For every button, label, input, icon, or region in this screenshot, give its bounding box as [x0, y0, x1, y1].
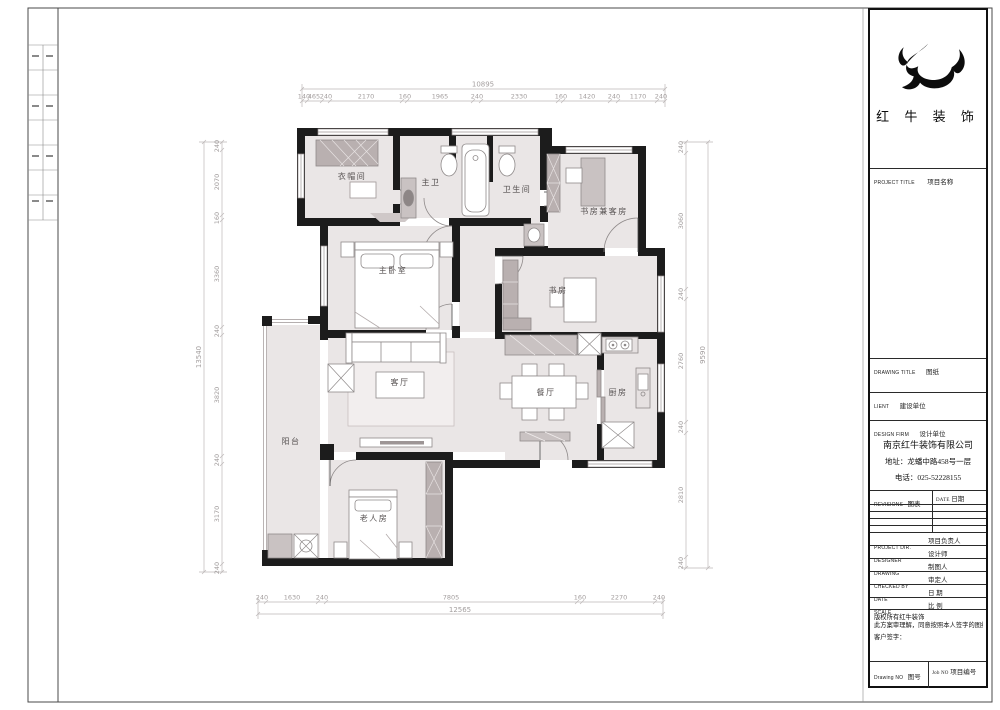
job-no-label-en: Job NO [932, 671, 949, 676]
dimension-right-text: 240 3060 240 2760 240 2810 240 9590 [677, 141, 707, 569]
svg-text:2810: 2810 [677, 487, 685, 504]
svg-text:1170: 1170 [630, 93, 647, 101]
svg-text:240: 240 [213, 140, 221, 152]
kitchen-sink [638, 374, 648, 390]
date-row-label-cn: 日 期 [928, 587, 943, 597]
divider [870, 609, 986, 610]
room-label-elderly-room: 老人房 [360, 513, 389, 523]
divider [870, 571, 986, 572]
svg-text:160: 160 [574, 594, 586, 602]
dimension-bottom-text: 240 1630 240 7805 160 2270 240 12565 [256, 594, 665, 615]
divider [870, 504, 986, 505]
svg-text:2760: 2760 [677, 353, 685, 370]
divider [870, 525, 986, 526]
dimension-right [681, 140, 713, 570]
svg-text:240: 240 [213, 562, 221, 574]
drawing-sheet: 衣帽间 主卫 卫生间 书房兼客房 主卧室 书房 客厅 餐厅 厨房 阳台 老人房 … [0, 0, 1000, 710]
svg-text:2270: 2270 [611, 594, 628, 602]
svg-text:240: 240 [471, 93, 483, 101]
date-label-cn: 日期 [951, 496, 964, 503]
copyright-line-2: 此方案审理解，同意按照本人签字的图纸施工； [874, 620, 983, 629]
svg-text:9590: 9590 [699, 346, 707, 364]
job-no-label-cn: 项目编号 [950, 669, 976, 676]
master-bed [341, 242, 453, 328]
client-label-en: LIENT [874, 404, 889, 410]
divider [870, 392, 986, 393]
date-label-en: DATE [936, 498, 950, 503]
svg-text:3170: 3170 [213, 506, 221, 523]
svg-text:240: 240 [677, 288, 685, 300]
sheet-margin-grid [28, 45, 58, 220]
svg-text:240: 240 [655, 93, 667, 101]
divider [870, 597, 986, 598]
title-block: 红 牛 装 饰 PROJECT TITLE 项目名称 DRAWING TITLE… [868, 8, 988, 688]
drawing-label-cn: 制图人 [928, 561, 948, 571]
svg-text:240: 240 [677, 141, 685, 153]
svg-text:10895: 10895 [472, 81, 494, 89]
room-label-master-bath: 主卫 [422, 177, 441, 187]
drawing-title-label-cn: 图纸 [926, 369, 939, 376]
room-label-study-guest-room: 书房兼客房 [580, 206, 628, 216]
divider [870, 420, 986, 421]
room-label-cloakroom: 衣帽间 [338, 171, 367, 181]
svg-text:240: 240 [320, 93, 332, 101]
room-label-living-room: 客厅 [391, 377, 410, 387]
svg-text:1965: 1965 [432, 93, 449, 101]
svg-text:3060: 3060 [677, 213, 685, 230]
dimension-left-text: 240 2070 160 3360 240 3820 240 3170 240 … [195, 140, 221, 574]
svg-text:240: 240 [653, 594, 665, 602]
svg-text:13540: 13540 [195, 346, 203, 368]
client-label-cn: 建设单位 [900, 403, 926, 410]
svg-text:240: 240 [213, 454, 221, 466]
drawing-no-label-cn: 图号 [908, 674, 921, 681]
svg-text:240: 240 [213, 325, 221, 337]
divider [870, 518, 986, 519]
svg-text:240: 240 [677, 421, 685, 433]
client-row: LIENT 建设单位 [874, 395, 984, 413]
svg-text:12565: 12565 [449, 606, 471, 614]
divider [870, 545, 986, 546]
project-title-label-en: PROJECT TITLE [874, 180, 915, 186]
bathtub [462, 144, 489, 216]
redbull-logo-icon [892, 40, 968, 98]
svg-text:240: 240 [316, 594, 328, 602]
drawing-title-label-en: DRAWING TITLE [874, 370, 916, 376]
company-phone: 电话：025-52228155 [870, 472, 986, 483]
svg-text:3820: 3820 [213, 387, 221, 404]
company-name: 南京红牛装饰有限公司 [870, 438, 986, 451]
divider [870, 168, 986, 169]
project-dir-label-cn: 项目负责人 [928, 535, 961, 545]
room-label-bathroom: 卫生间 [503, 184, 532, 194]
svg-text:2070: 2070 [213, 174, 221, 191]
revisions-header: REVISIONS 图表 [874, 493, 984, 511]
checked-by-label-cn: 审定人 [928, 574, 948, 584]
svg-text:240: 240 [256, 594, 268, 602]
svg-text:465: 465 [308, 93, 320, 101]
divider [870, 532, 986, 533]
divider [870, 358, 986, 359]
dimension-top-text: 10895 140 465 240 2170 160 1965 240 2330… [298, 81, 667, 101]
room-label-master-bedroom: 主卧室 [379, 265, 408, 275]
stove [606, 339, 632, 351]
svg-text:2170: 2170 [358, 93, 375, 101]
svg-text:2330: 2330 [511, 93, 528, 101]
svg-text:3360: 3360 [213, 266, 221, 283]
company-address: 地址：龙蟠中路458号一层 [870, 456, 986, 467]
revisions-date-header: DATE 日期 [936, 493, 964, 503]
project-title-label-cn: 项目名称 [927, 179, 953, 186]
copyright-line-3: 客户签字： [874, 632, 983, 641]
svg-text:240: 240 [677, 557, 685, 569]
brand-name: 红 牛 装 饰 [870, 106, 986, 125]
drawing-no-label-en: Drawing NO [874, 675, 903, 681]
room-label-dining-room: 餐厅 [537, 388, 556, 397]
floor-plan-canvas: 衣帽间 主卫 卫生间 书房兼客房 主卧室 书房 客厅 餐厅 厨房 阳台 老人房 … [0, 0, 1000, 710]
job-no-cell: Job NO 项目编号 [932, 666, 976, 676]
drawing-title-row: DRAWING TITLE 图纸 [874, 361, 984, 379]
room-label-study: 书房 [549, 285, 568, 295]
svg-text:160: 160 [213, 212, 221, 224]
tv-screen [380, 441, 424, 445]
svg-text:160: 160 [555, 93, 567, 101]
svg-text:1420: 1420 [579, 93, 596, 101]
margin-label-marks [32, 55, 53, 202]
svg-text:1630: 1630 [284, 594, 301, 602]
divider [870, 511, 986, 512]
svg-text:160: 160 [399, 93, 411, 101]
room-label-kitchen: 厨房 [609, 387, 628, 397]
designer-label-cn: 设计师 [928, 548, 948, 558]
divider [870, 584, 986, 585]
svg-text:7805: 7805 [443, 594, 460, 602]
revisions-label-en: REVISIONS [874, 502, 903, 508]
divider [870, 490, 986, 491]
project-title-row: PROJECT TITLE 项目名称 [874, 171, 984, 189]
kitchen-sliding-door [597, 370, 605, 424]
design-firm-label-cn: 设计单位 [919, 431, 945, 438]
divider [870, 558, 986, 559]
svg-text:240: 240 [608, 93, 620, 101]
room-label-balcony: 阳台 [282, 436, 301, 446]
